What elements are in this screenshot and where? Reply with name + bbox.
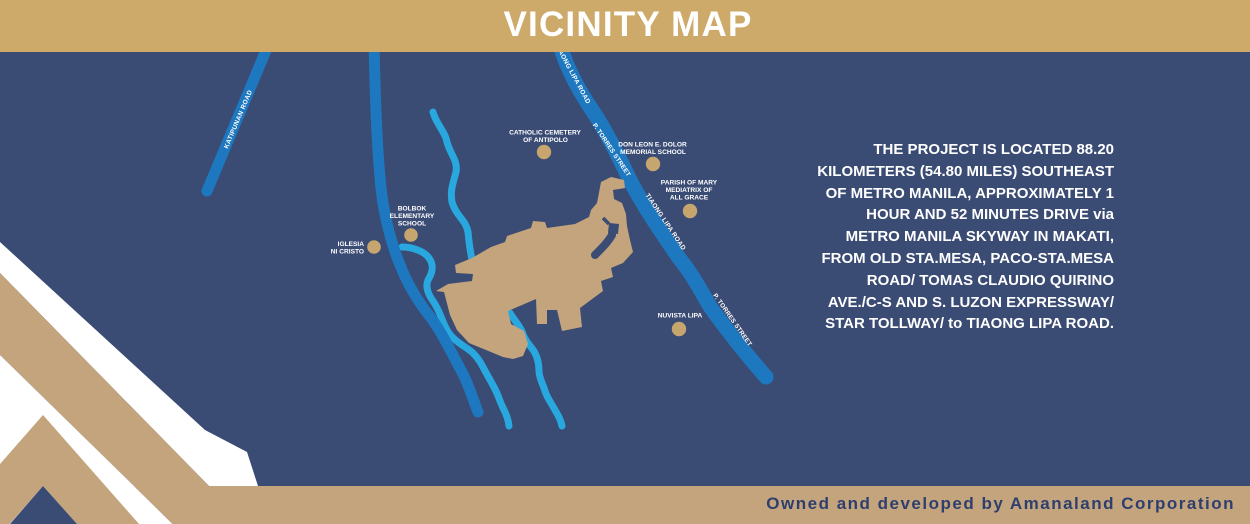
svg-text:NI CRISTO: NI CRISTO <box>331 249 364 256</box>
svg-text:DON LEON E. DOLOR: DON LEON E. DOLOR <box>618 142 687 149</box>
svg-text:KATIPUNAN ROAD: KATIPUNAN ROAD <box>223 89 254 150</box>
svg-text:MEDIATRIX OF: MEDIATRIX OF <box>666 187 713 194</box>
svg-text:ALL GRACE: ALL GRACE <box>670 195 709 202</box>
svg-text:IGLESIA: IGLESIA <box>338 241 365 248</box>
svg-text:NUVISTA LIPA: NUVISTA LIPA <box>658 313 703 320</box>
svg-text:BOLBOK: BOLBOK <box>398 206 427 213</box>
svg-text:MEMORIAL SCHOOL: MEMORIAL SCHOOL <box>620 149 686 156</box>
svg-text:CATHOLIC CEMETERY: CATHOLIC CEMETERY <box>509 130 581 137</box>
svg-text:ELEMENTARY: ELEMENTARY <box>390 213 435 220</box>
svg-text:OF ANTIPOLO: OF ANTIPOLO <box>523 137 568 144</box>
svg-text:SCHOOL: SCHOOL <box>398 220 426 227</box>
svg-text:PARISH OF MARY: PARISH OF MARY <box>661 180 718 187</box>
svg-text:TIAONG LIPA ROAD: TIAONG LIPA ROAD <box>553 43 591 105</box>
